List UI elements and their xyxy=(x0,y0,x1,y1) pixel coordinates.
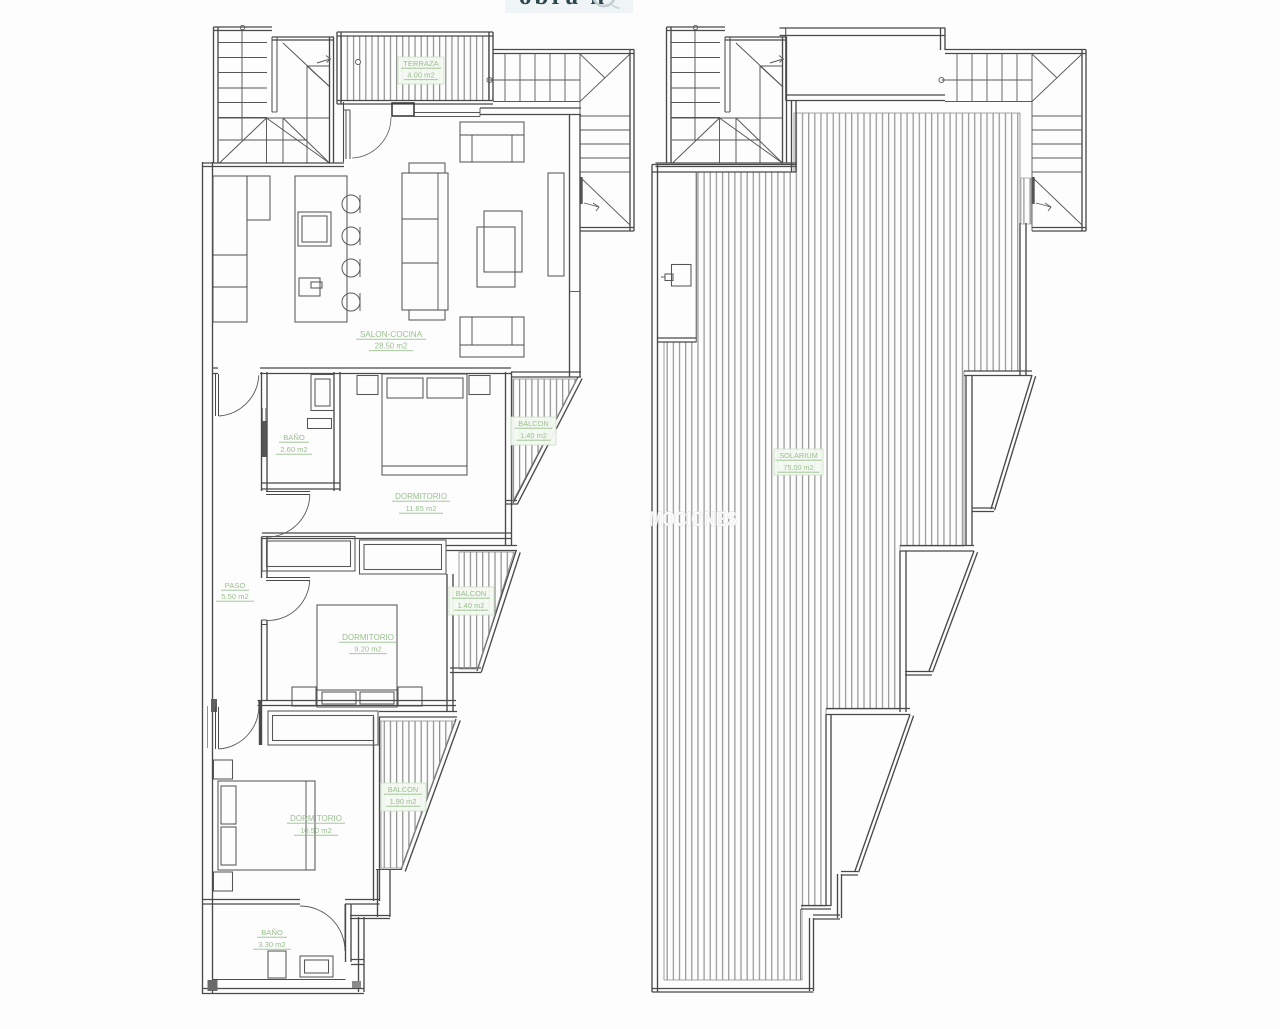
svg-text:5.50 m2: 5.50 m2 xyxy=(221,592,248,601)
svg-text:DORMITORIO: DORMITORIO xyxy=(342,633,394,642)
svg-text:11.65 m2: 11.65 m2 xyxy=(405,504,436,513)
svg-text:BAÑO: BAÑO xyxy=(261,928,283,937)
svg-text:10.50 m2: 10.50 m2 xyxy=(300,826,332,835)
svg-text:SOLARIUM: SOLARIUM xyxy=(779,451,818,460)
svg-text:9.20 m2: 9.20 m2 xyxy=(354,645,381,654)
svg-text:DORMITORIO: DORMITORIO xyxy=(395,492,447,501)
svg-text:BALCON: BALCON xyxy=(456,589,486,598)
svg-text:4.00 m2: 4.00 m2 xyxy=(407,71,434,80)
svg-text:BALCON: BALCON xyxy=(388,785,418,794)
svg-text:3.30 m2: 3.30 m2 xyxy=(258,940,285,949)
svg-text:BALCON: BALCON xyxy=(518,419,548,428)
svg-text:SALON-COCINA: SALON-COCINA xyxy=(360,330,423,339)
svg-text:1.90 m2: 1.90 m2 xyxy=(390,797,417,806)
svg-text:TERRAZA: TERRAZA xyxy=(403,59,439,68)
svg-text:1.40 m2: 1.40 m2 xyxy=(458,601,485,610)
svg-text:PASO: PASO xyxy=(225,581,246,590)
svg-text:1.40 m2: 1.40 m2 xyxy=(520,431,547,440)
svg-text:DORMITORIO: DORMITORIO xyxy=(290,814,342,823)
svg-text:2.60 m2: 2.60 m2 xyxy=(280,445,307,454)
svg-text:MOCIONES: MOCIONES xyxy=(649,508,737,531)
svg-text:BAÑO: BAÑO xyxy=(283,433,305,442)
svg-text:28.50 m2: 28.50 m2 xyxy=(375,342,408,351)
svg-text:75.00 m2: 75.00 m2 xyxy=(784,463,814,472)
